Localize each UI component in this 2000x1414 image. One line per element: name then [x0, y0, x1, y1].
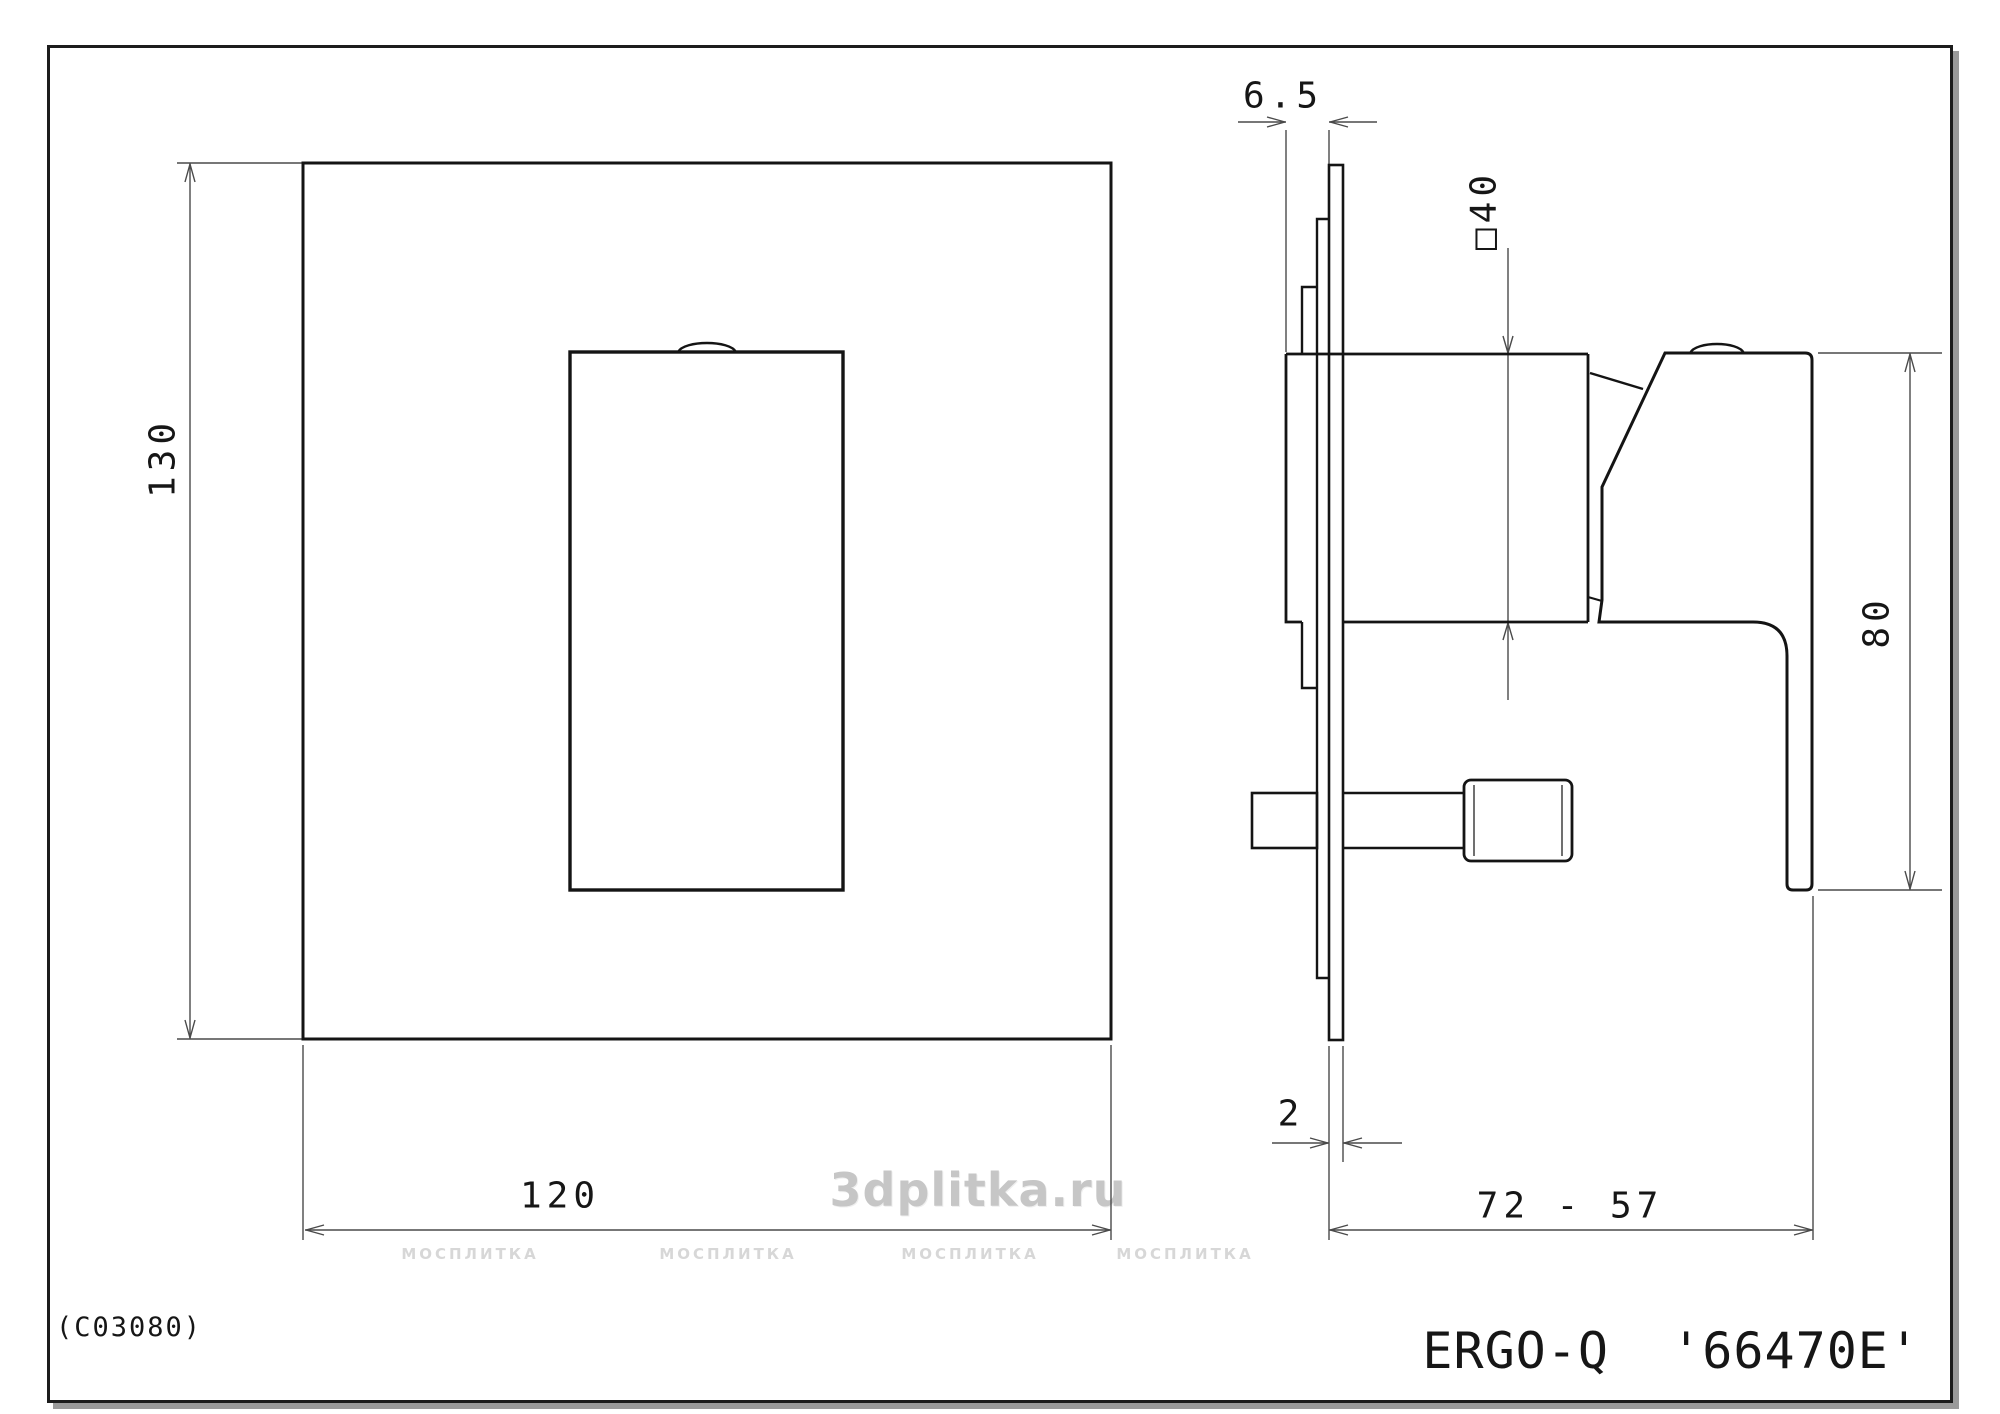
dim-width-label: 120 — [520, 1176, 600, 1217]
side-spout-stub — [1252, 793, 1317, 848]
dim-offset-label: 6.5 — [1243, 76, 1323, 117]
dim-lever-label: 80 — [1857, 595, 1898, 648]
drawing-code: (C03080) — [56, 1312, 202, 1343]
cad-linework — [0, 0, 2000, 1414]
side-spout-knob — [1464, 780, 1572, 861]
drawing-page: 3dplitka.ru МОСПЛИТКА МОСПЛИТКА МОСПЛИТК… — [0, 0, 2000, 1414]
dim-thickness-label: 2 — [1278, 1094, 1305, 1135]
side-spout-shaft — [1343, 793, 1464, 848]
front-plate — [303, 163, 1111, 1039]
side-seam — [1590, 373, 1643, 389]
side-plate — [1329, 165, 1343, 1040]
product-title: ERGO-Q '66470E' — [1422, 1322, 1920, 1380]
front-view — [303, 163, 1111, 1039]
side-flange — [1317, 219, 1329, 978]
dim-depth-label: 72 - 57 — [1477, 1186, 1664, 1227]
side-view — [1252, 165, 1812, 1040]
side-body — [1286, 354, 1588, 622]
dim-height-label: 130 — [143, 418, 184, 498]
dim-body-label: □40 — [1464, 170, 1505, 250]
side-seam-low — [1588, 597, 1602, 601]
side-spout-knob-shading — [1474, 785, 1562, 856]
dimension-lines — [177, 117, 1942, 1240]
side-lever — [1599, 353, 1812, 890]
side-sleeve — [1302, 287, 1318, 688]
front-handle — [570, 352, 843, 890]
